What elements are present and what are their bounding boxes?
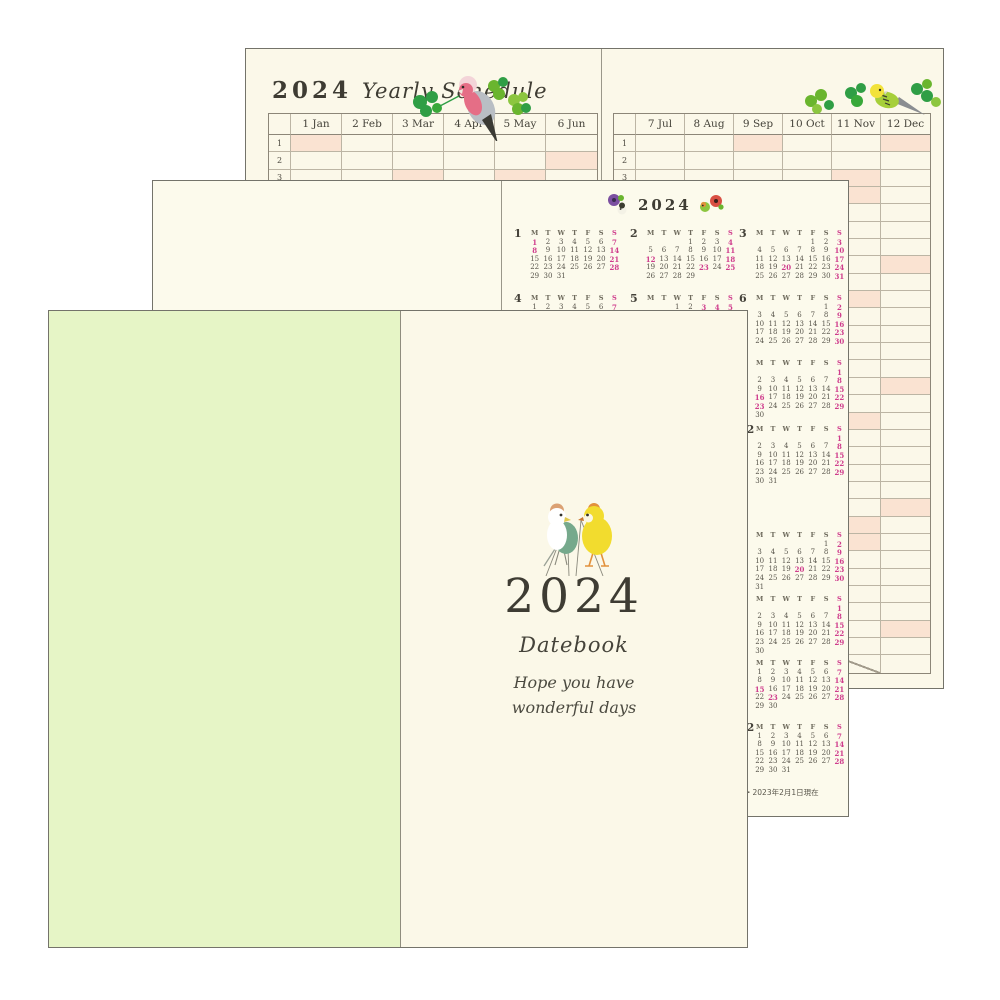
day-cell: 6 <box>806 376 819 385</box>
day-cell: 24 <box>753 337 766 346</box>
schedule-month-header: 1 Jan <box>291 114 342 135</box>
day-cell <box>819 411 832 420</box>
day-cell: 21 <box>833 685 846 694</box>
day-cell <box>806 477 819 486</box>
day-cell: 5 <box>780 548 793 557</box>
day-cell: 14 <box>608 246 621 255</box>
day-cell: 23 <box>753 468 766 477</box>
day-cell: 21 <box>819 459 832 468</box>
weekday-label: S <box>724 294 737 303</box>
day-cell: 21 <box>806 565 819 574</box>
day-cell: 10 <box>766 451 779 460</box>
day-cell: 14 <box>833 740 846 749</box>
day-cell: 18 <box>568 255 581 264</box>
day-cell <box>806 766 819 775</box>
day-cell: 25 <box>780 638 793 647</box>
weekday-label: W <box>780 531 793 540</box>
day-cell: 17 <box>753 328 766 337</box>
day-cell <box>724 272 737 281</box>
day-cell: 29 <box>528 272 541 281</box>
day-cell: 18 <box>780 459 793 468</box>
day-cell <box>806 411 819 420</box>
schedule-day-number: 2 <box>614 152 636 169</box>
day-cell: 5 <box>806 668 819 677</box>
day-cell <box>819 647 832 656</box>
day-cell <box>766 303 779 312</box>
day-cell: 28 <box>819 638 832 647</box>
schedule-month-header: 8 Aug <box>685 114 734 135</box>
schedule-cell <box>495 152 546 169</box>
day-cell: 23 <box>833 328 846 337</box>
day-cell <box>793 477 806 486</box>
day-cell: 21 <box>819 393 832 402</box>
day-cell <box>793 368 806 377</box>
day-cell: 17 <box>555 255 568 264</box>
clover-icon <box>845 83 866 107</box>
day-cell <box>780 540 793 549</box>
weekday-label: T <box>766 425 779 434</box>
day-cell: 19 <box>793 459 806 468</box>
day-cell: 24 <box>766 402 779 411</box>
day-cell <box>780 434 793 443</box>
day-cell: 6 <box>594 238 607 247</box>
day-cell: 26 <box>780 337 793 346</box>
day-cell: 19 <box>793 629 806 638</box>
weekday-label: T <box>657 229 670 238</box>
clover-icon <box>488 77 508 100</box>
day-cell: 23 <box>753 402 766 411</box>
day-cell: 22 <box>833 459 846 468</box>
day-cell: 4 <box>793 668 806 677</box>
day-cell: 13 <box>657 255 670 264</box>
schedule-cell <box>881 638 930 655</box>
day-cell: 29 <box>833 468 846 477</box>
day-cell: 1 <box>833 604 846 613</box>
clover-icon <box>805 89 834 114</box>
day-cell: 24 <box>780 693 793 702</box>
day-cell: 4 <box>753 246 766 255</box>
day-cell <box>819 434 832 443</box>
day-cell: 2 <box>753 376 766 385</box>
weekday-label: M <box>644 229 657 238</box>
day-cell: 29 <box>833 402 846 411</box>
weekday-label: W <box>780 294 793 303</box>
mini-month-2024-9: 9MTWTFSS12345678910111213141516171819202… <box>753 359 847 419</box>
day-cell: 27 <box>819 757 832 766</box>
day-cell: 1 <box>819 303 832 312</box>
mini-month-2025-3: 3MTWTFSS12345678910111213141516171819202… <box>753 531 847 591</box>
schedule-cell <box>783 135 832 152</box>
day-cell: 28 <box>833 693 846 702</box>
day-cell: 12 <box>780 557 793 566</box>
day-cell: 11 <box>793 676 806 685</box>
day-cell: 16 <box>766 685 779 694</box>
day-cell: 9 <box>819 246 832 255</box>
schedule-cell <box>881 326 930 343</box>
weekday-label: F <box>806 294 819 303</box>
lovebird-and-yellow-bird-icon <box>515 496 640 576</box>
day-cell: 31 <box>766 477 779 486</box>
schedule-cell <box>881 239 930 256</box>
day-cell: 13 <box>819 740 832 749</box>
day-cell: 3 <box>753 311 766 320</box>
day-cell: 3 <box>555 238 568 247</box>
day-cell: 23 <box>541 263 554 272</box>
weekday-label: S <box>833 229 846 238</box>
day-cell: 10 <box>780 740 793 749</box>
day-cell <box>710 272 723 281</box>
day-cell: 7 <box>833 732 846 741</box>
day-cell: 19 <box>780 565 793 574</box>
day-cell: 1 <box>753 668 766 677</box>
day-cell <box>806 303 819 312</box>
day-cell: 17 <box>833 255 846 264</box>
day-cell: 4 <box>766 548 779 557</box>
cover-year: 2024 <box>401 569 747 624</box>
weekday-label: T <box>766 294 779 303</box>
day-cell: 23 <box>766 693 779 702</box>
day-cell: 7 <box>819 612 832 621</box>
day-cell: 22 <box>833 629 846 638</box>
day-cell: 10 <box>766 385 779 394</box>
day-cell: 18 <box>766 328 779 337</box>
weekday-label: T <box>568 229 581 238</box>
day-cell: 21 <box>608 255 621 264</box>
day-cell: 11 <box>766 320 779 329</box>
day-cell: 5 <box>780 311 793 320</box>
weekday-label: S <box>710 294 723 303</box>
day-cell: 5 <box>766 246 779 255</box>
day-cell: 14 <box>793 255 806 264</box>
day-cell <box>766 434 779 443</box>
day-cell <box>793 583 806 592</box>
day-cell: 16 <box>753 393 766 402</box>
weekday-label: M <box>753 229 766 238</box>
day-cell: 14 <box>819 451 832 460</box>
day-cell <box>608 272 621 281</box>
weekday-label: S <box>594 294 607 303</box>
weekday-label: S <box>833 595 846 604</box>
schedule-cell <box>881 222 930 239</box>
schedule-cell <box>881 586 930 603</box>
day-cell: 13 <box>806 621 819 630</box>
day-cell <box>793 647 806 656</box>
day-cell <box>833 766 846 775</box>
day-cell: 30 <box>833 337 846 346</box>
day-cell: 20 <box>657 263 670 272</box>
day-cell: 18 <box>793 685 806 694</box>
day-cell: 28 <box>793 272 806 281</box>
weekday-label: W <box>780 659 793 668</box>
schedule-cell <box>734 152 783 169</box>
schedule-cell <box>881 413 930 430</box>
day-cell: 2 <box>697 238 710 247</box>
weekday-label: M <box>753 294 766 303</box>
day-cell: 29 <box>819 574 832 583</box>
day-cell: 7 <box>833 668 846 677</box>
day-cell: 8 <box>753 740 766 749</box>
day-cell: 13 <box>594 246 607 255</box>
cover-tagline-line1: Hope you have <box>401 671 747 696</box>
day-cell <box>753 238 766 247</box>
weekday-label: F <box>581 229 594 238</box>
schedule-cell <box>881 343 930 360</box>
day-cell: 22 <box>819 565 832 574</box>
schedule-cell <box>881 256 930 273</box>
day-cell: 13 <box>793 320 806 329</box>
day-cell: 6 <box>657 246 670 255</box>
day-cell: 23 <box>753 638 766 647</box>
schedule-cell <box>832 135 881 152</box>
day-cell: 21 <box>671 263 684 272</box>
day-cell: 13 <box>793 557 806 566</box>
day-cell <box>780 238 793 247</box>
day-cell <box>833 477 846 486</box>
day-cell: 3 <box>710 238 723 247</box>
day-cell: 9 <box>753 451 766 460</box>
schedule-cell <box>881 499 930 516</box>
weekday-label: T <box>766 229 779 238</box>
flower-bird-icon <box>605 191 633 219</box>
day-cell: 11 <box>780 621 793 630</box>
day-cell: 14 <box>671 255 684 264</box>
mini-month-2024-1: 1MTWTFSS12345678910111213141516171819202… <box>528 229 622 281</box>
schedule-cell <box>881 621 930 638</box>
schedule-cell <box>881 655 930 672</box>
schedule-month-header: 9 Sep <box>734 114 783 135</box>
day-cell: 10 <box>710 246 723 255</box>
day-cell: 16 <box>753 629 766 638</box>
day-cell: 2 <box>541 238 554 247</box>
day-cell: 20 <box>594 255 607 264</box>
cover-tagline-line2: wonderful days <box>401 696 747 721</box>
day-cell: 11 <box>780 385 793 394</box>
schedule-cell <box>393 152 444 169</box>
day-cell <box>766 368 779 377</box>
schedule-cell <box>881 447 930 464</box>
day-cell: 31 <box>555 272 568 281</box>
day-cell: 30 <box>766 702 779 711</box>
day-cell <box>697 272 710 281</box>
day-cell: 8 <box>819 548 832 557</box>
day-cell: 26 <box>806 693 819 702</box>
day-cell: 20 <box>819 749 832 758</box>
day-cell <box>833 583 846 592</box>
day-cell: 2 <box>766 668 779 677</box>
weekday-label: W <box>780 595 793 604</box>
day-cell: 16 <box>833 320 846 329</box>
weekday-label: T <box>793 723 806 732</box>
day-cell: 7 <box>806 311 819 320</box>
day-cell: 13 <box>806 385 819 394</box>
day-cell: 16 <box>753 459 766 468</box>
cover-front-panel: 2024 Datebook Hope you have wonderful da… <box>401 311 747 947</box>
weekday-label: F <box>806 359 819 368</box>
day-cell: 27 <box>780 272 793 281</box>
weekday-label: M <box>644 294 657 303</box>
cover-tagline: Hope you have wonderful days <box>401 671 747 721</box>
day-cell: 30 <box>541 272 554 281</box>
day-cell: 8 <box>833 442 846 451</box>
weekday-label: S <box>833 659 846 668</box>
schedule-month-header: 6 Jun <box>546 114 597 135</box>
schedule-cell <box>881 517 930 534</box>
weekday-label: M <box>753 723 766 732</box>
day-cell <box>766 583 779 592</box>
day-cell: 14 <box>833 676 846 685</box>
day-cell: 1 <box>833 434 846 443</box>
day-cell <box>766 647 779 656</box>
day-cell <box>780 368 793 377</box>
mini-month-2025-12: 12MTWTFSS1234567891011121314151617181920… <box>753 723 847 775</box>
schedule-cell <box>636 135 685 152</box>
day-cell <box>819 702 832 711</box>
day-cell: 15 <box>753 685 766 694</box>
day-cell: 10 <box>753 557 766 566</box>
schedule-cell <box>881 482 930 499</box>
day-cell: 23 <box>819 263 832 272</box>
day-cell: 17 <box>710 255 723 264</box>
day-cell: 25 <box>766 574 779 583</box>
day-cell: 3 <box>780 668 793 677</box>
day-cell: 9 <box>833 548 846 557</box>
schedule-cell <box>685 135 734 152</box>
day-cell: 12 <box>806 676 819 685</box>
day-cell <box>753 434 766 443</box>
day-cell: 16 <box>819 255 832 264</box>
day-cell: 17 <box>780 749 793 758</box>
weekday-label: S <box>819 425 832 434</box>
schedule-cell <box>881 187 930 204</box>
weekday-label: T <box>793 425 806 434</box>
weekday-label: T <box>766 659 779 668</box>
day-cell: 12 <box>793 385 806 394</box>
day-cell: 22 <box>806 263 819 272</box>
day-cell: 18 <box>724 255 737 264</box>
weekday-label: W <box>780 425 793 434</box>
day-cell: 21 <box>806 328 819 337</box>
day-cell: 6 <box>806 442 819 451</box>
mini-month-2025-6: 6MTWTFSS12345678910111213141516171819202… <box>753 595 847 655</box>
schedule-corner-cell <box>614 114 636 135</box>
day-cell: 15 <box>806 255 819 264</box>
day-cell: 28 <box>608 263 621 272</box>
weekday-label: F <box>806 723 819 732</box>
day-cell: 9 <box>541 246 554 255</box>
day-cell: 11 <box>724 246 737 255</box>
schedule-cell <box>881 465 930 482</box>
schedule-cell <box>881 603 930 620</box>
schedule-cell <box>546 135 597 152</box>
day-cell: 3 <box>780 732 793 741</box>
day-cell: 2 <box>753 442 766 451</box>
schedule-day-number: 2 <box>269 152 291 169</box>
day-cell: 22 <box>833 393 846 402</box>
weekday-label: S <box>833 359 846 368</box>
day-cell: 30 <box>766 766 779 775</box>
day-cell: 21 <box>793 263 806 272</box>
schedule-cell <box>783 152 832 169</box>
day-cell: 17 <box>766 629 779 638</box>
schedule-cell <box>881 152 930 169</box>
day-cell: 15 <box>819 557 832 566</box>
schedule-cell <box>881 569 930 586</box>
weekday-label: M <box>753 659 766 668</box>
day-cell: 24 <box>780 757 793 766</box>
day-cell: 16 <box>697 255 710 264</box>
day-cell: 6 <box>819 732 832 741</box>
day-cell: 22 <box>684 263 697 272</box>
day-cell: 8 <box>684 246 697 255</box>
schedule-cell <box>342 135 393 152</box>
day-cell: 17 <box>766 393 779 402</box>
schedule-cell <box>881 291 930 308</box>
day-cell: 27 <box>657 272 670 281</box>
day-cell: 29 <box>684 272 697 281</box>
day-cell: 19 <box>766 263 779 272</box>
day-cell: 4 <box>568 238 581 247</box>
day-cell: 7 <box>819 376 832 385</box>
day-cell: 5 <box>581 238 594 247</box>
day-cell: 9 <box>697 246 710 255</box>
schedule-cell <box>832 152 881 169</box>
weekday-label: F <box>697 229 710 238</box>
schedule-cell <box>881 360 930 377</box>
schedule-cell <box>881 170 930 187</box>
mini-month-number: 5 <box>630 292 638 305</box>
day-cell <box>780 604 793 613</box>
day-cell: 14 <box>819 385 832 394</box>
day-cell: 5 <box>793 612 806 621</box>
calendar-year-title: 2024 <box>638 196 692 214</box>
day-cell <box>766 238 779 247</box>
day-cell: 25 <box>793 693 806 702</box>
day-cell: 27 <box>819 693 832 702</box>
mini-month-2024-12: 12MTWTFSS1234567891011121314151617181920… <box>753 425 847 485</box>
day-cell: 2 <box>833 540 846 549</box>
schedule-cell <box>881 308 930 325</box>
day-cell <box>766 411 779 420</box>
day-cell <box>819 766 832 775</box>
clover-icon <box>508 92 531 115</box>
day-cell: 20 <box>806 459 819 468</box>
day-cell: 10 <box>780 676 793 685</box>
day-cell: 17 <box>753 565 766 574</box>
cover-green-panel <box>49 311 401 947</box>
day-cell: 1 <box>684 238 697 247</box>
day-cell: 27 <box>793 574 806 583</box>
day-cell <box>819 583 832 592</box>
day-cell: 20 <box>793 328 806 337</box>
day-cell: 24 <box>833 263 846 272</box>
weekday-label: W <box>780 229 793 238</box>
day-cell <box>753 368 766 377</box>
day-cell: 16 <box>541 255 554 264</box>
day-cell: 3 <box>766 442 779 451</box>
yearly-schedule-year: 2024 <box>272 77 352 104</box>
weekday-label: W <box>780 359 793 368</box>
day-cell: 22 <box>819 328 832 337</box>
day-cell: 12 <box>581 246 594 255</box>
schedule-cell <box>881 534 930 551</box>
day-cell: 20 <box>806 393 819 402</box>
day-cell <box>657 238 670 247</box>
day-cell: 10 <box>833 246 846 255</box>
day-cell: 14 <box>806 557 819 566</box>
schedule-cell <box>881 430 930 447</box>
schedule-cell <box>342 152 393 169</box>
weekday-label: T <box>793 595 806 604</box>
